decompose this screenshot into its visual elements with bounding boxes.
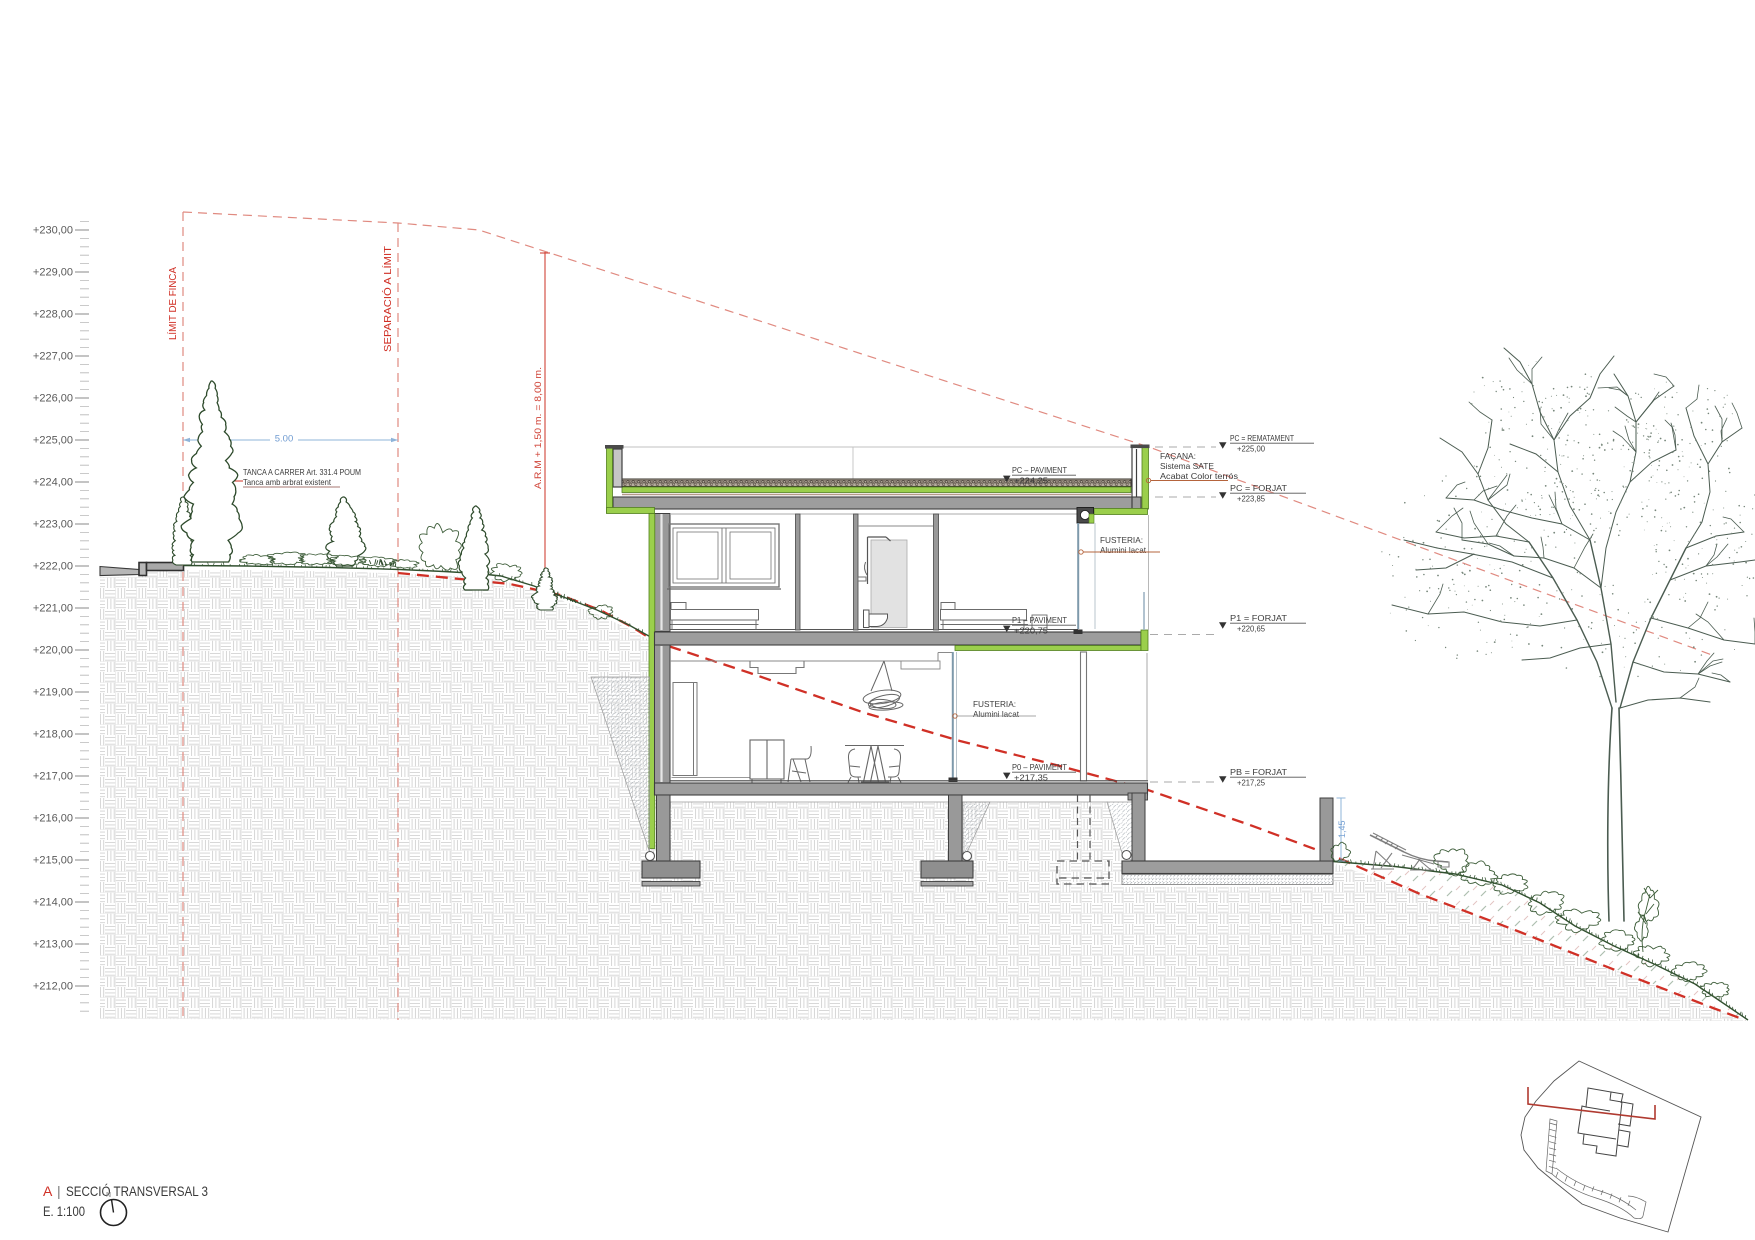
- svg-text:Tanca amb arbrat existent: Tanca amb arbrat existent: [243, 478, 332, 487]
- svg-text:PB = FORJAT: PB = FORJAT: [1230, 767, 1288, 777]
- svg-text:SECCIÓ TRANSVERSAL 3: SECCIÓ TRANSVERSAL 3: [66, 1183, 208, 1199]
- svg-text:Alumini lacat: Alumini lacat: [973, 710, 1020, 719]
- svg-text:FAÇANA:: FAÇANA:: [1160, 452, 1196, 461]
- svg-text:+223,00: +223,00: [33, 519, 73, 531]
- svg-text:PC – PAVIMENT: PC – PAVIMENT: [1012, 465, 1068, 475]
- svg-text:+224,00: +224,00: [33, 477, 73, 489]
- svg-text:+227,00: +227,00: [33, 351, 73, 363]
- svg-text:P1 – PAVIMENT: P1 – PAVIMENT: [1012, 615, 1068, 625]
- svg-text:+223,85: +223,85: [1237, 493, 1265, 503]
- svg-text:+214,00: +214,00: [33, 897, 73, 909]
- svg-text:+226,00: +226,00: [33, 393, 73, 405]
- svg-text:+220,75: +220,75: [1014, 625, 1048, 635]
- svg-text:Alumini lacat: Alumini lacat: [1100, 546, 1147, 555]
- svg-text:PC = REMATAMENT: PC = REMATAMENT: [1230, 433, 1295, 443]
- svg-text:+228,00: +228,00: [33, 309, 73, 321]
- svg-text:+217,00: +217,00: [33, 771, 73, 783]
- svg-text:+220,65: +220,65: [1237, 623, 1265, 633]
- svg-text:1,45: 1,45: [1337, 820, 1347, 838]
- svg-text:LÍMIT DE FINCA: LÍMIT DE FINCA: [166, 267, 179, 340]
- svg-text:+216,00: +216,00: [33, 813, 73, 825]
- svg-text:TANCA A CARRER Art. 331.4 PO: TANCA A CARRER Art. 331.4 POUM: [243, 468, 361, 477]
- svg-text:+222,00: +222,00: [33, 561, 73, 573]
- svg-text:+212,00: +212,00: [33, 981, 73, 993]
- svg-text:N: N: [106, 1192, 111, 1199]
- svg-text:Acabat Color terrós: Acabat Color terrós: [1160, 472, 1238, 481]
- svg-text:A: A: [43, 1183, 53, 1199]
- svg-text:+229,00: +229,00: [33, 267, 73, 279]
- svg-text:E. 1:100: E. 1:100: [43, 1204, 85, 1219]
- svg-text:5.00: 5.00: [275, 434, 294, 445]
- svg-text:Sistema SATE: Sistema SATE: [1160, 462, 1215, 471]
- svg-text:A.R.M + 1,50 m. = 8,00 m.: A.R.M + 1,50 m. = 8,00 m.: [533, 367, 544, 489]
- svg-text:P1 = FORJAT: P1 = FORJAT: [1230, 613, 1288, 623]
- svg-text:SEPARACIÓ A LÍMIT: SEPARACIÓ A LÍMIT: [381, 245, 394, 352]
- svg-text:+220,00: +220,00: [33, 645, 73, 657]
- svg-text:P0 – PAVIMENT: P0 – PAVIMENT: [1012, 762, 1068, 772]
- svg-text:+217,25: +217,25: [1237, 777, 1265, 787]
- svg-text:+219,00: +219,00: [33, 687, 73, 699]
- svg-text:+221,00: +221,00: [33, 603, 73, 615]
- svg-text:FUSTERIA:: FUSTERIA:: [973, 700, 1016, 709]
- svg-text:+225,00: +225,00: [1237, 443, 1265, 453]
- svg-text:+224,25: +224,25: [1014, 475, 1048, 485]
- svg-text:FUSTERIA:: FUSTERIA:: [1100, 536, 1143, 545]
- svg-text:|: |: [57, 1183, 61, 1199]
- svg-text:PC = FORJAT: PC = FORJAT: [1230, 483, 1288, 493]
- svg-text:+225,00: +225,00: [33, 435, 73, 447]
- svg-text:+215,00: +215,00: [33, 855, 73, 867]
- svg-text:+218,00: +218,00: [33, 729, 73, 741]
- svg-text:+213,00: +213,00: [33, 939, 73, 951]
- svg-text:+217,35: +217,35: [1014, 772, 1048, 782]
- svg-text:+230,00: +230,00: [33, 225, 73, 237]
